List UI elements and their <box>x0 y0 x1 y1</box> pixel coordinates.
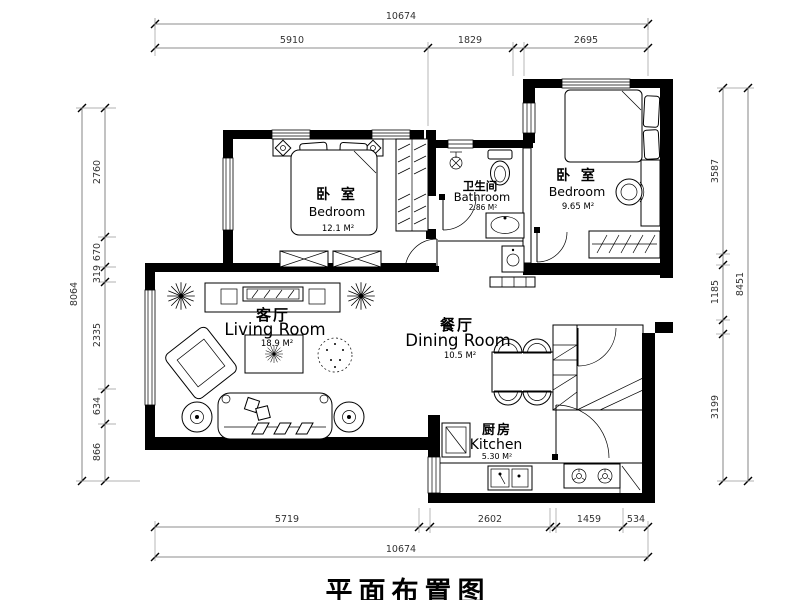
dining-chair-4 <box>523 391 551 405</box>
bedroom2-name-cn: 卧 室 <box>556 167 598 184</box>
dim-left-seg2: 670 <box>92 243 103 261</box>
kitchen-name-en: Kitchen <box>470 437 523 453</box>
dining-area: 10.5 M² <box>444 351 476 361</box>
fridge-icon <box>442 423 470 457</box>
dim-top-seg3: 2695 <box>574 35 598 46</box>
dining-name-en: Dining Room <box>405 331 511 350</box>
bedroom1-wardrobe <box>396 139 428 231</box>
dim-bottom-seg4: 534 <box>627 514 645 525</box>
bedroom1-dresser-right <box>333 251 381 267</box>
dim-right-seg1: 3587 <box>710 159 721 183</box>
floor-plan-page: 10674 5910 1829 2695 5719 2602 1459 534 … <box>0 0 800 600</box>
bedroom1-dresser-left <box>280 251 328 267</box>
dim-left-total: 8064 <box>69 282 80 306</box>
dim-left-seg6: 866 <box>92 443 103 461</box>
bedroom2-window-top <box>562 79 630 88</box>
kitchen-sink-icon <box>488 466 532 490</box>
dim-bottom-seg2: 2602 <box>478 514 502 525</box>
bedroom1-window-top-left <box>272 130 310 139</box>
dim-bottom-seg3: 1459 <box>577 514 601 525</box>
kitchen-label: 厨房 Kitchen 5.30 M² <box>470 422 523 461</box>
bedroom1-area: 12.1 M² <box>322 224 354 234</box>
entry-closet <box>553 325 643 410</box>
bedroom2-window-left <box>523 103 535 133</box>
bedroom1-window-left <box>223 158 233 230</box>
plant-icon-right <box>347 282 375 310</box>
bedroom2-door <box>534 227 567 262</box>
dim-left-seg4: 2335 <box>92 323 103 347</box>
sofa-pillow-2 <box>256 406 271 421</box>
bedroom2-bed <box>565 90 642 162</box>
bedroom1-name-cn: 卧 室 <box>316 186 358 203</box>
washing-machine-icon <box>502 246 524 272</box>
bedroom2-name-en: Bedroom <box>549 184 606 199</box>
bathroom-area: 2.86 M² <box>469 203 498 212</box>
plant-icon-left <box>167 282 195 310</box>
living-area: 18.9 M² <box>261 339 293 349</box>
side-table-right <box>334 402 364 432</box>
bathroom-window-top <box>448 140 473 148</box>
tv-icon <box>243 287 303 301</box>
bedroom1-name-en: Bedroom <box>309 204 366 219</box>
dim-top-total: 10674 <box>386 11 416 22</box>
kitchen-area: 5.30 M² <box>482 452 512 461</box>
sofa <box>218 393 332 439</box>
dim-left-seg1: 2760 <box>92 160 103 184</box>
dim-right-seg3: 3199 <box>710 395 721 419</box>
dining-furniture <box>490 277 643 410</box>
dim-top-seg2: 1829 <box>458 35 482 46</box>
dim-right-total: 8451 <box>735 272 746 296</box>
bedroom2-pillow-bottom <box>643 130 659 160</box>
side-table-left <box>182 402 212 432</box>
round-rug <box>318 338 352 372</box>
bedroom2-pillow-top <box>643 96 660 128</box>
living-window-left <box>145 290 155 405</box>
dining-chair-2 <box>523 339 551 353</box>
floor-plan-drawing: 10674 5910 1829 2695 5719 2602 1459 534 … <box>0 0 800 600</box>
bedroom2-label: 卧 室 Bedroom 9.65 M² <box>549 167 606 212</box>
dim-bottom-seg1: 5719 <box>275 514 299 525</box>
bathroom-sink-icon <box>486 213 524 238</box>
bedroom2-chair <box>616 179 644 205</box>
kitchen-door <box>552 405 609 460</box>
stove-icon <box>564 464 620 488</box>
dining-chair-3 <box>494 391 522 405</box>
dining-table <box>492 352 553 392</box>
entry-closet-door <box>578 328 616 366</box>
bedroom2-area: 9.65 M² <box>562 202 594 212</box>
dim-top-seg1: 5910 <box>280 35 304 46</box>
shower-icon <box>450 152 462 169</box>
dim-bottom-total: 10674 <box>386 544 416 555</box>
dim-left-seg3: 319 <box>92 265 103 283</box>
kitchen-furniture <box>440 423 642 493</box>
shoe-cabinet <box>490 277 535 287</box>
kitchen-window-left <box>428 457 440 493</box>
living-name-en: Living Room <box>224 320 325 339</box>
kitchen-name-cn: 厨房 <box>482 422 512 438</box>
dim-right-seg2: 1185 <box>710 280 721 304</box>
dimension-bottom: 5719 2602 1459 534 10674 <box>151 508 652 561</box>
dim-left-seg5: 634 <box>92 397 103 415</box>
dimension-left: 2760 670 319 2335 634 866 8064 <box>69 104 140 485</box>
drawing-title: 平面布置图 <box>326 577 491 600</box>
bedroom1-window-top-right <box>372 130 410 139</box>
bedroom2-wardrobe <box>589 231 660 258</box>
bathroom-name-en: Bathroom <box>454 190 510 204</box>
dimension-right: 3587 1185 3199 8451 <box>710 84 754 485</box>
bedroom1-furniture <box>273 139 428 267</box>
